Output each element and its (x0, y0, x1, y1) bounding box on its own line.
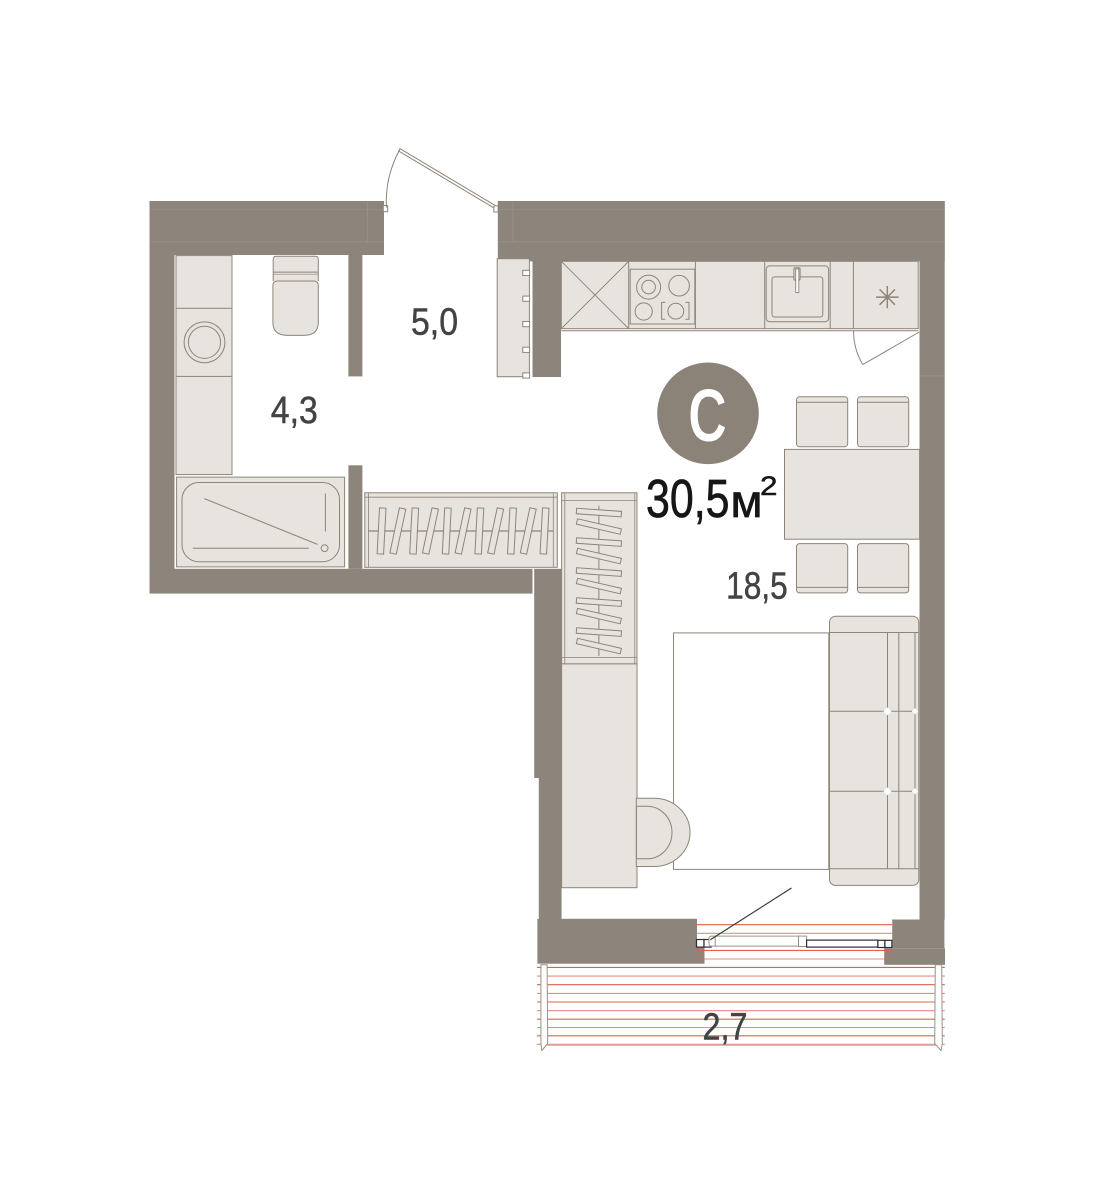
svg-text:30,5: 30,5 (646, 470, 730, 529)
svg-text:2,7: 2,7 (703, 1007, 748, 1049)
svg-text:С: С (688, 374, 727, 458)
svg-text:4,3: 4,3 (271, 390, 318, 432)
svg-text:2: 2 (760, 471, 778, 501)
svg-text:5,0: 5,0 (411, 302, 458, 344)
svg-text:м: м (731, 475, 763, 527)
svg-text:18,5: 18,5 (726, 566, 788, 608)
